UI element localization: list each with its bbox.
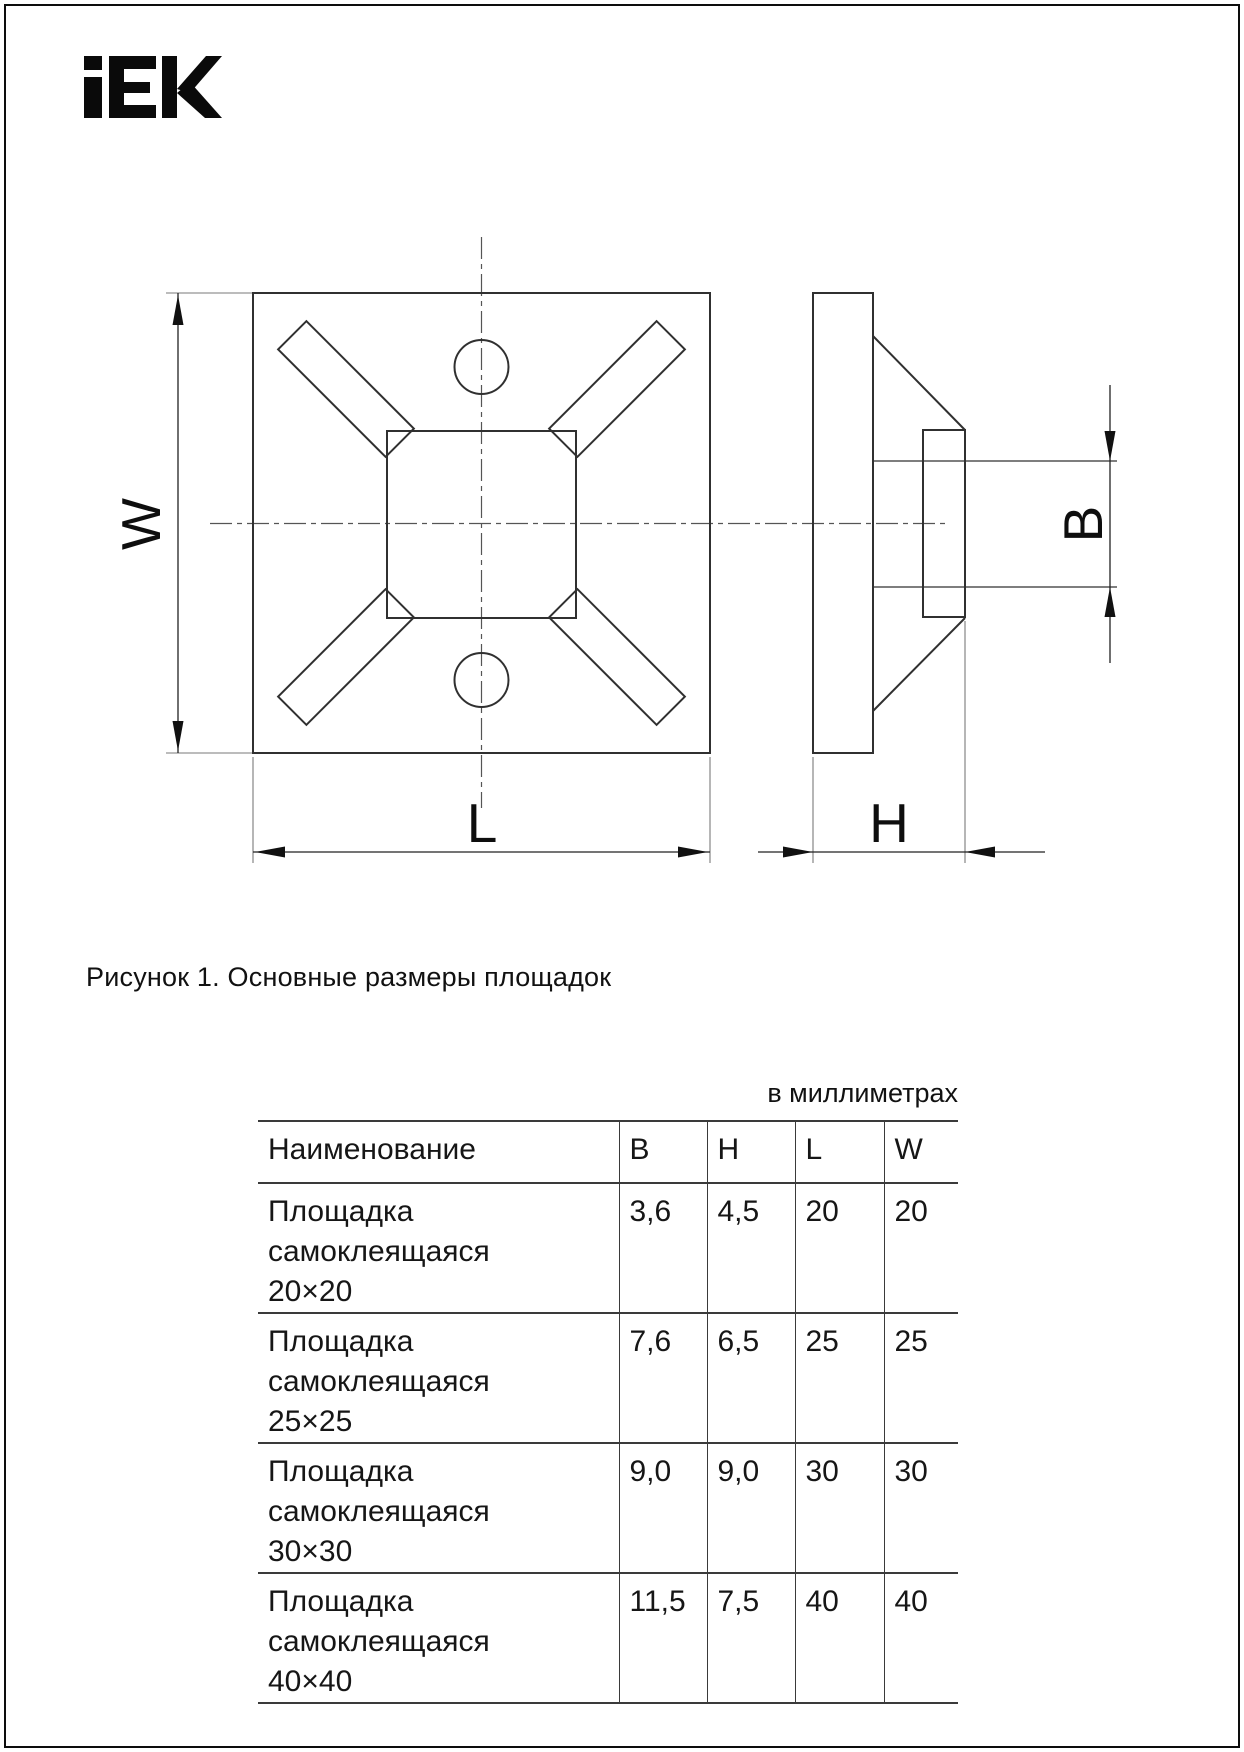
units-note: в миллиметрах [258, 1078, 958, 1109]
col-header-b: B [619, 1121, 707, 1183]
slot-top-left [278, 321, 414, 457]
b-arrow-top [1105, 431, 1116, 461]
head-top-chamfer [873, 336, 965, 430]
table-row: Площадка самоклеящаяся 30×30 9,0 9,0 30 … [258, 1443, 958, 1573]
col-header-h: H [707, 1121, 795, 1183]
cell-w: 25 [884, 1313, 958, 1443]
product-name: Площадка самоклеящаяся [268, 1582, 619, 1662]
cell-b: 3,6 [619, 1183, 707, 1313]
cell-l: 30 [795, 1443, 884, 1573]
dimension-lines [178, 293, 1110, 852]
cell-w: 30 [884, 1443, 958, 1573]
cell-h: 6,5 [707, 1313, 795, 1443]
cell-b: 11,5 [619, 1573, 707, 1703]
w-arrow-down [173, 721, 184, 751]
product-name: Площадка самоклеящаяся [268, 1322, 619, 1402]
b-arrow-bottom [1105, 587, 1116, 617]
cell-name: Площадка самоклеящаяся 25×25 [258, 1313, 619, 1443]
table-row: Площадка самоклеящаяся 40×40 11,5 7,5 40… [258, 1573, 958, 1703]
product-size: 30×30 [268, 1532, 619, 1572]
col-header-name: Наименование [258, 1121, 619, 1183]
h-label: H [869, 792, 909, 854]
col-header-w: W [884, 1121, 958, 1183]
cell-l: 20 [795, 1183, 884, 1313]
cell-h: 9,0 [707, 1443, 795, 1573]
cell-name: Площадка самоклеящаяся 40×40 [258, 1573, 619, 1703]
l-arrow-left [255, 847, 285, 858]
figure-caption: Рисунок 1. Основные размеры площадок [86, 962, 611, 993]
head-bottom-chamfer [873, 618, 965, 711]
table-row: Площадка самоклеящаяся 20×20 3,6 4,5 20 … [258, 1183, 958, 1313]
product-size: 20×20 [268, 1272, 619, 1312]
datasheet-page: W L H B Рисунок 1. Основные размеры площ… [0, 0, 1244, 1752]
cell-b: 9,0 [619, 1443, 707, 1573]
slot-bottom-right [549, 589, 685, 725]
extension-lines [166, 293, 965, 863]
product-name: Площадка самоклеящаяся [268, 1452, 619, 1532]
h-arrow-right [965, 847, 995, 858]
cell-w: 20 [884, 1183, 958, 1313]
slot-bottom-left [278, 589, 414, 725]
product-size: 25×25 [268, 1402, 619, 1442]
center-lines [210, 237, 945, 808]
dimension-labels: W L H B [110, 498, 1114, 854]
l-arrow-right [678, 847, 708, 858]
cell-h: 7,5 [707, 1573, 795, 1703]
dimensions-table: Наименование B H L W Площадка самоклеяща… [258, 1120, 958, 1704]
cell-name: Площадка самоклеящаяся 30×30 [258, 1443, 619, 1573]
cell-l: 25 [795, 1313, 884, 1443]
product-name: Площадка самоклеящаяся [268, 1192, 619, 1272]
cell-name: Площадка самоклеящаяся 20×20 [258, 1183, 619, 1313]
dimension-arrowheads [173, 295, 1116, 858]
col-header-l: L [795, 1121, 884, 1183]
b-label: B [1052, 506, 1114, 543]
l-label: L [467, 792, 498, 854]
cell-h: 4,5 [707, 1183, 795, 1313]
cell-b: 7,6 [619, 1313, 707, 1443]
product-size: 40×40 [268, 1662, 619, 1702]
w-arrow-up [173, 295, 184, 325]
h-arrow-left [783, 847, 813, 858]
cell-w: 40 [884, 1573, 958, 1703]
w-label: W [110, 498, 172, 550]
cell-l: 40 [795, 1573, 884, 1703]
table-header-row: Наименование B H L W [258, 1121, 958, 1183]
slot-top-right [549, 321, 685, 457]
table-row: Площадка самоклеящаяся 25×25 7,6 6,5 25 … [258, 1313, 958, 1443]
